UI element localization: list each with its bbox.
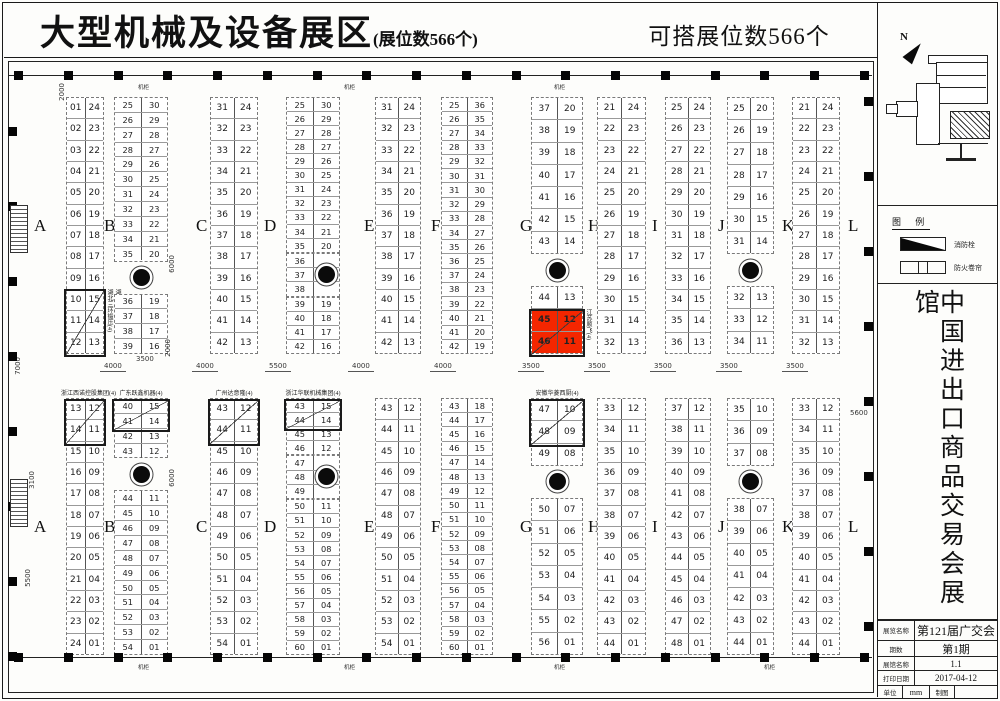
booth-cell[interactable]: 45 (442, 427, 468, 440)
booth-cell[interactable]: 04 (558, 566, 583, 587)
booth-cell[interactable]: 32 (211, 119, 235, 139)
booth-cell[interactable]: 50 (115, 581, 142, 595)
booth-cell[interactable]: 08 (817, 484, 840, 504)
booth-cell[interactable]: 20 (235, 183, 258, 203)
booth-cell[interactable]: 35 (442, 240, 468, 253)
booth-cell[interactable]: 48 (532, 421, 558, 442)
booth-cell[interactable]: 52 (115, 610, 142, 624)
booth-cell[interactable]: 34 (728, 332, 751, 353)
booth-cell[interactable]: 42 (211, 333, 235, 353)
booth-cell[interactable]: 47 (532, 399, 558, 420)
booth-cell[interactable]: 09 (142, 521, 168, 535)
booth-cell[interactable]: 33 (468, 141, 493, 154)
booth-cell[interactable]: 42 (598, 591, 622, 611)
booth-cell[interactable]: 42 (287, 340, 314, 353)
booth-cell[interactable]: 25 (666, 98, 689, 118)
booth-cell[interactable]: 11 (235, 420, 258, 440)
booth-cell[interactable]: 31 (442, 183, 468, 196)
booth-cell[interactable]: 15 (235, 290, 258, 310)
booth-cell[interactable]: 32 (376, 119, 399, 139)
booth-cell[interactable]: 21 (622, 162, 645, 182)
booth-cell[interactable]: 07 (86, 506, 104, 526)
booth-cell[interactable]: 01 (558, 633, 583, 654)
booth-cell[interactable]: 50 (287, 500, 314, 513)
booth-cell[interactable]: 19 (558, 120, 583, 141)
booth-cell[interactable]: 07 (399, 506, 421, 526)
booth-cell[interactable]: 31 (793, 311, 817, 331)
booth-cell[interactable]: 25 (468, 254, 493, 267)
booth-cell[interactable]: 28 (115, 143, 142, 157)
booth-cell[interactable]: 40 (287, 312, 314, 325)
booth-cell[interactable]: 18 (142, 309, 168, 323)
booth-cell[interactable]: 37 (793, 484, 817, 504)
booth-cell[interactable]: 34 (376, 162, 399, 182)
booth-cell[interactable]: 09 (314, 528, 340, 541)
booth-cell[interactable]: 44 (211, 420, 235, 440)
booth-cell[interactable]: 38 (376, 247, 399, 267)
booth-cell[interactable]: 10 (622, 442, 645, 462)
booth-cell[interactable]: 27 (793, 226, 817, 246)
booth-cell[interactable]: 12 (468, 484, 493, 497)
booth-cell[interactable]: 10 (468, 513, 493, 526)
booth-cell[interactable]: 35 (287, 239, 314, 252)
booth-cell[interactable]: 40 (793, 548, 817, 568)
booth-cell[interactable]: 42 (376, 333, 399, 353)
booth-cell[interactable]: 17 (468, 413, 493, 426)
booth-cell[interactable]: 35 (598, 442, 622, 462)
booth-cell[interactable]: 50 (376, 548, 399, 568)
booth-cell[interactable]: 41 (287, 326, 314, 339)
booth-cell[interactable]: 04 (751, 566, 773, 587)
booth-cell[interactable]: 05 (399, 548, 421, 568)
booth-cell[interactable]: 35 (211, 183, 235, 203)
booth-cell[interactable]: 19 (468, 340, 493, 353)
booth-cell[interactable]: 30 (793, 290, 817, 310)
booth-cell[interactable]: 43 (442, 399, 468, 412)
booth-cell[interactable]: 18 (622, 226, 645, 246)
booth-cell[interactable]: 42 (793, 591, 817, 611)
booth-cell[interactable]: 22 (235, 141, 258, 161)
booth-cell[interactable]: 29 (666, 183, 689, 203)
booth-cell[interactable]: 32 (666, 247, 689, 267)
booth-cell[interactable]: 35 (376, 183, 399, 203)
booth-cell[interactable]: 05 (558, 544, 583, 565)
booth-cell[interactable]: 40 (666, 463, 689, 483)
booth-cell[interactable]: 05 (142, 581, 168, 595)
booth-cell[interactable]: 38 (532, 120, 558, 141)
booth-cell[interactable]: 02 (67, 119, 86, 139)
booth-cell[interactable]: 08 (622, 484, 645, 504)
booth-cell[interactable]: 14 (86, 311, 104, 331)
booth-cell[interactable]: 18 (235, 226, 258, 246)
booth-cell[interactable]: 42 (115, 429, 142, 443)
booth-cell[interactable]: 35 (115, 247, 142, 261)
booth-cell[interactable]: 42 (666, 506, 689, 526)
booth-cell[interactable]: 32 (468, 155, 493, 168)
booth-cell[interactable]: 12 (751, 309, 773, 330)
booth-cell[interactable]: 13 (689, 333, 711, 353)
booth-cell[interactable]: 07 (235, 506, 258, 526)
booth-cell[interactable]: 15 (86, 290, 104, 310)
booth-cell[interactable]: 17 (235, 247, 258, 267)
booth-cell[interactable]: 49 (376, 527, 399, 547)
booth-cell[interactable]: 01 (817, 634, 840, 654)
booth-cell[interactable]: 51 (115, 595, 142, 609)
booth-cell[interactable]: 30 (666, 205, 689, 225)
booth-cell[interactable]: 51 (211, 570, 235, 590)
booth-cell[interactable]: 11 (689, 420, 711, 440)
booth-cell[interactable]: 41 (376, 311, 399, 331)
booth-cell[interactable]: 08 (751, 444, 773, 465)
booth-cell[interactable]: 15 (142, 399, 168, 413)
booth-cell[interactable]: 45 (376, 442, 399, 462)
booth-cell[interactable]: 08 (142, 536, 168, 550)
booth-cell[interactable]: 60 (287, 641, 314, 654)
booth-cell[interactable]: 19 (751, 120, 773, 141)
booth-cell[interactable]: 41 (728, 566, 751, 587)
booth-cell[interactable]: 21 (67, 570, 86, 590)
booth-cell[interactable]: 27 (728, 143, 751, 164)
booth-cell[interactable]: 24 (689, 98, 711, 118)
booth-cell[interactable]: 25 (287, 98, 314, 111)
booth-cell[interactable]: 40 (211, 290, 235, 310)
booth-cell[interactable]: 10 (751, 399, 773, 420)
booth-cell[interactable]: 17 (399, 247, 421, 267)
booth-cell[interactable]: 05 (67, 183, 86, 203)
booth-cell[interactable]: 03 (558, 588, 583, 609)
booth-cell[interactable]: 59 (287, 627, 314, 640)
booth-cell[interactable]: 11 (314, 500, 340, 513)
booth-cell[interactable]: 04 (235, 570, 258, 590)
booth-cell[interactable]: 05 (689, 548, 711, 568)
booth-cell[interactable]: 22 (314, 211, 340, 224)
booth-cell[interactable]: 36 (442, 254, 468, 267)
booth-cell[interactable]: 48 (287, 471, 314, 484)
booth-cell[interactable]: 37 (532, 98, 558, 119)
booth-cell[interactable]: 23 (817, 119, 840, 139)
booth-cell[interactable]: 17 (142, 324, 168, 338)
booth-cell[interactable]: 44 (442, 413, 468, 426)
booth-cell[interactable]: 14 (314, 413, 340, 426)
booth-cell[interactable]: 38 (115, 324, 142, 338)
booth-cell[interactable]: 10 (142, 506, 168, 520)
booth-cell[interactable]: 33 (376, 141, 399, 161)
booth-cell[interactable]: 37 (442, 269, 468, 282)
booth-cell[interactable]: 12 (622, 399, 645, 419)
booth-cell[interactable]: 39 (793, 527, 817, 547)
booth-cell[interactable]: 03 (399, 591, 421, 611)
booth-cell[interactable]: 15 (689, 290, 711, 310)
booth-cell[interactable]: 12 (86, 399, 104, 419)
booth-cell[interactable]: 51 (442, 513, 468, 526)
booth-cell[interactable]: 29 (728, 187, 751, 208)
booth-cell[interactable]: 52 (376, 591, 399, 611)
booth-cell[interactable]: 15 (67, 442, 86, 462)
booth-cell[interactable]: 07 (689, 506, 711, 526)
booth-cell[interactable]: 10 (817, 442, 840, 462)
booth-cell[interactable]: 21 (689, 162, 711, 182)
booth-cell[interactable]: 55 (532, 610, 558, 631)
booth-cell[interactable]: 09 (622, 463, 645, 483)
booth-cell[interactable]: 14 (235, 311, 258, 331)
booth-cell[interactable]: 30 (287, 169, 314, 182)
booth-cell[interactable]: 27 (442, 126, 468, 139)
booth-cell[interactable]: 36 (287, 254, 314, 267)
booth-cell[interactable]: 38 (287, 282, 314, 295)
booth-cell[interactable]: 49 (532, 444, 558, 465)
booth-cell[interactable]: 09 (468, 527, 493, 540)
booth-cell[interactable]: 32 (598, 333, 622, 353)
booth-cell[interactable] (314, 282, 340, 295)
booth-cell[interactable]: 51 (376, 570, 399, 590)
booth-cell[interactable]: 39 (442, 297, 468, 310)
booth-cell[interactable]: 19 (142, 295, 168, 309)
booth-cell[interactable]: 16 (817, 269, 840, 289)
booth-cell[interactable]: 41 (211, 311, 235, 331)
booth-cell[interactable]: 02 (622, 612, 645, 632)
booth-cell[interactable]: 56 (532, 633, 558, 654)
booth-cell[interactable]: 11 (558, 332, 583, 353)
booth-cell[interactable]: 20 (468, 326, 493, 339)
booth-cell[interactable]: 49 (442, 484, 468, 497)
booth-cell[interactable]: 03 (142, 610, 168, 624)
booth-cell[interactable]: 38 (211, 247, 235, 267)
booth-cell[interactable]: 29 (142, 113, 168, 127)
booth-cell[interactable]: 13 (67, 399, 86, 419)
booth-cell[interactable]: 13 (817, 333, 840, 353)
booth-cell[interactable]: 16 (689, 269, 711, 289)
booth-cell[interactable]: 46 (442, 442, 468, 455)
booth-cell[interactable]: 16 (67, 463, 86, 483)
booth-cell[interactable]: 13 (751, 287, 773, 308)
booth-cell[interactable]: 23 (468, 283, 493, 296)
booth-cell[interactable]: 06 (751, 521, 773, 542)
booth-cell[interactable]: 51 (287, 514, 314, 527)
booth-cell[interactable]: 17 (86, 247, 104, 267)
booth-cell[interactable]: 25 (442, 98, 468, 111)
booth-cell[interactable]: 35 (468, 112, 493, 125)
booth-cell[interactable]: 31 (115, 187, 142, 201)
booth-cell[interactable]: 22 (468, 297, 493, 310)
booth-cell[interactable]: 32 (442, 198, 468, 211)
booth-cell[interactable]: 31 (598, 311, 622, 331)
booth-cell[interactable]: 46 (376, 463, 399, 483)
booth-cell[interactable]: 52 (211, 591, 235, 611)
booth-cell[interactable]: 15 (399, 290, 421, 310)
booth-cell[interactable]: 15 (751, 209, 773, 230)
booth-cell[interactable]: 57 (442, 598, 468, 611)
booth-cell[interactable]: 09 (558, 421, 583, 442)
booth-cell[interactable]: 08 (399, 484, 421, 504)
booth-cell[interactable]: 56 (287, 584, 314, 597)
booth-cell[interactable]: 05 (622, 548, 645, 568)
booth-cell[interactable]: 02 (468, 627, 493, 640)
booth-cell[interactable]: 37 (211, 226, 235, 246)
booth-cell[interactable]: 13 (399, 333, 421, 353)
booth-cell[interactable]: 45 (287, 427, 314, 440)
booth-cell[interactable]: 37 (728, 444, 751, 465)
booth-cell[interactable]: 32 (115, 202, 142, 216)
booth-cell[interactable]: 23 (235, 119, 258, 139)
booth-cell[interactable]: 19 (235, 205, 258, 225)
booth-cell[interactable]: 24 (817, 98, 840, 118)
booth-cell[interactable]: 26 (287, 112, 314, 125)
booth-cell[interactable]: 31 (287, 183, 314, 196)
booth-cell[interactable]: 30 (468, 183, 493, 196)
booth-cell[interactable]: 44 (728, 633, 751, 654)
booth-cell[interactable]: 40 (728, 544, 751, 565)
booth-cell[interactable]: 33 (442, 212, 468, 225)
booth-cell[interactable]: 13 (86, 333, 104, 353)
booth-cell[interactable]: 41 (442, 326, 468, 339)
booth-cell[interactable]: 35 (666, 311, 689, 331)
booth-cell[interactable]: 40 (532, 165, 558, 186)
booth-cell[interactable]: 07 (67, 226, 86, 246)
booth-cell[interactable]: 25 (728, 98, 751, 119)
booth-cell[interactable]: 30 (598, 290, 622, 310)
booth-cell[interactable]: 10 (399, 442, 421, 462)
booth-cell[interactable]: 44 (598, 634, 622, 654)
booth-cell[interactable]: 22 (67, 591, 86, 611)
booth-cell[interactable]: 05 (235, 548, 258, 568)
booth-cell[interactable]: 07 (558, 499, 583, 520)
booth-cell[interactable]: 29 (287, 154, 314, 167)
booth-cell[interactable]: 06 (86, 527, 104, 547)
booth-cell[interactable]: 09 (86, 463, 104, 483)
booth-cell[interactable]: 18 (86, 226, 104, 246)
booth-cell[interactable]: 19 (314, 298, 340, 311)
booth-cell[interactable]: 03 (622, 591, 645, 611)
booth-cell[interactable]: 53 (115, 625, 142, 639)
booth-cell[interactable]: 44 (666, 548, 689, 568)
booth-cell[interactable]: 28 (793, 247, 817, 267)
booth-cell[interactable]: 39 (211, 269, 235, 289)
booth-cell[interactable]: 27 (314, 140, 340, 153)
booth-cell[interactable]: 29 (115, 157, 142, 171)
booth-cell[interactable]: 11 (468, 499, 493, 512)
booth-cell[interactable]: 12 (817, 399, 840, 419)
booth-cell[interactable]: 35 (793, 442, 817, 462)
booth-cell[interactable]: 24 (142, 187, 168, 201)
booth-cell[interactable]: 14 (67, 420, 86, 440)
booth-cell[interactable]: 06 (399, 527, 421, 547)
booth-cell[interactable]: 37 (376, 226, 399, 246)
booth-cell[interactable]: 02 (558, 610, 583, 631)
booth-cell[interactable]: 33 (287, 211, 314, 224)
booth-cell[interactable]: 20 (558, 98, 583, 119)
booth-cell[interactable]: 10 (558, 399, 583, 420)
booth-cell[interactable]: 59 (442, 627, 468, 640)
booth-cell[interactable]: 26 (442, 112, 468, 125)
booth-cell[interactable]: 44 (793, 634, 817, 654)
booth-cell[interactable]: 09 (235, 463, 258, 483)
booth-cell[interactable]: 38 (666, 420, 689, 440)
booth-cell[interactable]: 43 (793, 612, 817, 632)
booth-cell[interactable]: 04 (67, 162, 86, 182)
booth-cell[interactable]: 28 (468, 212, 493, 225)
booth-cell[interactable]: 32 (728, 287, 751, 308)
booth-cell[interactable]: 21 (314, 225, 340, 238)
booth-cell[interactable]: 22 (142, 217, 168, 231)
booth-cell[interactable]: 31 (211, 98, 235, 118)
booth-cell[interactable]: 18 (314, 312, 340, 325)
booth-cell[interactable]: 41 (793, 570, 817, 590)
booth-cell[interactable]: 10 (235, 442, 258, 462)
booth-cell[interactable]: 14 (622, 311, 645, 331)
booth-cell[interactable]: 54 (532, 588, 558, 609)
booth-cell[interactable]: 33 (211, 141, 235, 161)
booth-cell[interactable]: 13 (235, 333, 258, 353)
booth-cell[interactable]: 06 (689, 527, 711, 547)
booth-cell[interactable]: 26 (793, 205, 817, 225)
booth-cell[interactable]: 03 (235, 591, 258, 611)
booth-cell[interactable]: 23 (399, 119, 421, 139)
booth-cell[interactable]: 03 (689, 591, 711, 611)
booth-cell[interactable]: 41 (115, 414, 142, 428)
booth-cell[interactable]: 21 (235, 162, 258, 182)
booth-cell[interactable]: 18 (67, 506, 86, 526)
booth-cell[interactable]: 11 (67, 311, 86, 331)
booth-cell[interactable]: 50 (442, 499, 468, 512)
booth-cell[interactable]: 01 (751, 633, 773, 654)
booth-cell[interactable]: 49 (115, 566, 142, 580)
booth-cell[interactable]: 42 (442, 340, 468, 353)
booth-cell[interactable]: 06 (67, 205, 86, 225)
booth-cell[interactable] (314, 485, 340, 498)
booth-cell[interactable]: 34 (793, 420, 817, 440)
booth-cell[interactable]: 18 (751, 143, 773, 164)
booth-cell[interactable]: 29 (442, 155, 468, 168)
booth-cell[interactable]: 02 (235, 612, 258, 632)
booth-cell[interactable]: 01 (86, 634, 104, 654)
booth-cell[interactable]: 07 (468, 555, 493, 568)
booth-cell[interactable]: 33 (115, 217, 142, 231)
booth-cell[interactable]: 41 (532, 187, 558, 208)
booth-cell[interactable]: 13 (142, 429, 168, 443)
booth-cell[interactable]: 05 (314, 584, 340, 597)
booth-cell[interactable]: 46 (115, 521, 142, 535)
booth-cell[interactable]: 50 (211, 548, 235, 568)
booth-cell[interactable]: 13 (468, 470, 493, 483)
booth-cell[interactable]: 22 (598, 119, 622, 139)
booth-cell[interactable]: 10 (67, 290, 86, 310)
booth-cell[interactable]: 40 (115, 399, 142, 413)
booth-cell[interactable]: 54 (376, 634, 399, 654)
booth-cell[interactable]: 26 (115, 113, 142, 127)
booth-cell[interactable]: 29 (468, 198, 493, 211)
booth-cell[interactable]: 07 (622, 506, 645, 526)
booth-cell[interactable]: 20 (751, 98, 773, 119)
booth-cell[interactable]: 14 (751, 232, 773, 253)
booth-cell[interactable]: 03 (67, 141, 86, 161)
booth-cell[interactable]: 12 (67, 333, 86, 353)
booth-cell[interactable]: 39 (376, 269, 399, 289)
booth-cell[interactable]: 01 (67, 98, 86, 118)
booth-cell[interactable]: 20 (314, 239, 340, 252)
booth-cell[interactable]: 21 (468, 311, 493, 324)
booth-cell[interactable]: 03 (86, 591, 104, 611)
booth-cell[interactable]: 18 (817, 226, 840, 246)
booth-cell[interactable]: 43 (598, 612, 622, 632)
booth-cell[interactable]: 43 (211, 399, 235, 419)
booth-cell[interactable]: 54 (287, 556, 314, 569)
booth-cell[interactable]: 47 (442, 456, 468, 469)
booth-cell[interactable]: 36 (376, 205, 399, 225)
booth-cell[interactable]: 36 (468, 98, 493, 111)
booth-cell[interactable]: 02 (86, 612, 104, 632)
booth-cell[interactable]: 39 (532, 143, 558, 164)
booth-cell[interactable]: 14 (399, 311, 421, 331)
